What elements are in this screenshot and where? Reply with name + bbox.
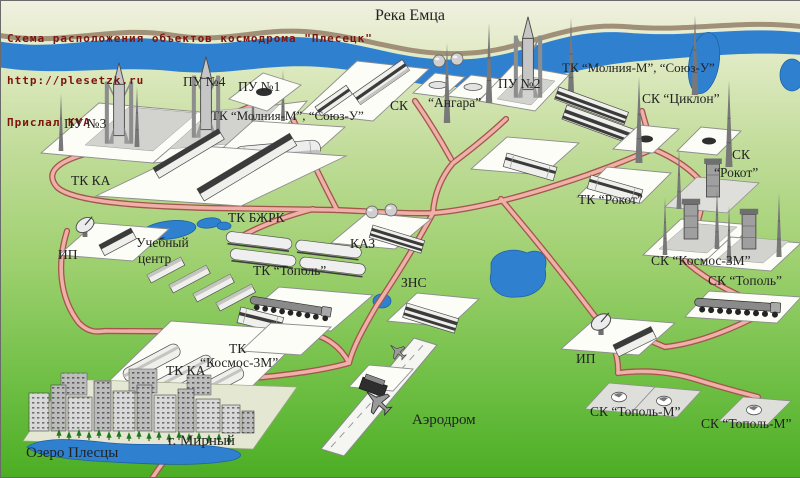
label-tk-topol: ТК “Тополь”	[253, 264, 326, 278]
label-tk-kosmos-line1: ТК	[229, 342, 246, 356]
label-pu3: ПУ №3	[64, 117, 106, 131]
label-sk-topol-m-right: СК “Тополь-М”	[701, 417, 792, 431]
label-tk-kosmos-line2: “Космос-3М”	[200, 356, 278, 370]
label-pu2: ПУ №2	[498, 77, 540, 91]
launch-tower-icon	[682, 199, 700, 239]
plesetsk-map: Схема расположения объектов космодрома "…	[0, 0, 800, 478]
label-tk-ka-top: ТК КА	[71, 174, 110, 188]
label-lake-plesetsy: Озеро Плесцы	[26, 446, 118, 460]
label-tk-molniya-left: ТК “Молния-М”, “Союз-У”	[211, 109, 364, 123]
label-sk-rokot-line2: “Рокот”	[714, 166, 758, 180]
label-kaz: КАЗ	[350, 237, 375, 251]
label-training-line1: Учебный	[136, 236, 189, 250]
label-aerodrome: Аэродром	[412, 413, 476, 427]
label-tk-rokot: ТК “Рокот”	[578, 193, 643, 207]
label-tk-ka-bottom: ТК КА	[166, 364, 205, 378]
label-training-line2: центр	[138, 252, 171, 266]
fuel-sphere-icon	[451, 53, 463, 65]
launch-tower-icon	[740, 209, 758, 249]
label-pu4: ПУ №4	[183, 75, 225, 89]
label-sk-kosmos: СК “Космос-3М”	[651, 254, 751, 268]
fuel-sphere-icon	[433, 55, 445, 67]
label-river: Река Емца	[375, 9, 445, 23]
label-mirny: г. Мирный	[168, 434, 235, 448]
fuel-sphere-icon	[385, 204, 397, 216]
lake-top-right-2	[780, 59, 800, 91]
label-sk-topol: СК “Тополь”	[708, 274, 782, 288]
launch-ring-icon	[429, 82, 447, 89]
label-tk-molniya-right: ТК “Молния-М”, “Союз-У”	[562, 61, 715, 75]
label-sk-topol-m-left: СК “Тополь-М”	[590, 405, 681, 419]
label-sk-tsiklon: СК “Циклон”	[642, 92, 720, 106]
label-tk-bzhrk: ТК БЖРК	[228, 211, 285, 225]
label-sk-angara-name: “Ангара”	[428, 96, 481, 110]
label-sk-rokot-line1: СК	[732, 148, 750, 162]
map-title: Схема расположения объектов космодрома "…	[7, 32, 373, 46]
fuel-sphere-icon	[366, 206, 378, 218]
lake-central	[490, 250, 546, 297]
flame-pit-icon	[702, 138, 716, 145]
label-sk-angara-prefix: СК	[390, 99, 408, 113]
label-pu1: ПУ №1	[238, 80, 280, 94]
label-zns: ЗНС	[401, 276, 427, 290]
label-ip-right: ИП	[576, 352, 596, 366]
label-ip-left: ИП	[58, 248, 78, 262]
launch-ring-icon	[464, 84, 482, 91]
